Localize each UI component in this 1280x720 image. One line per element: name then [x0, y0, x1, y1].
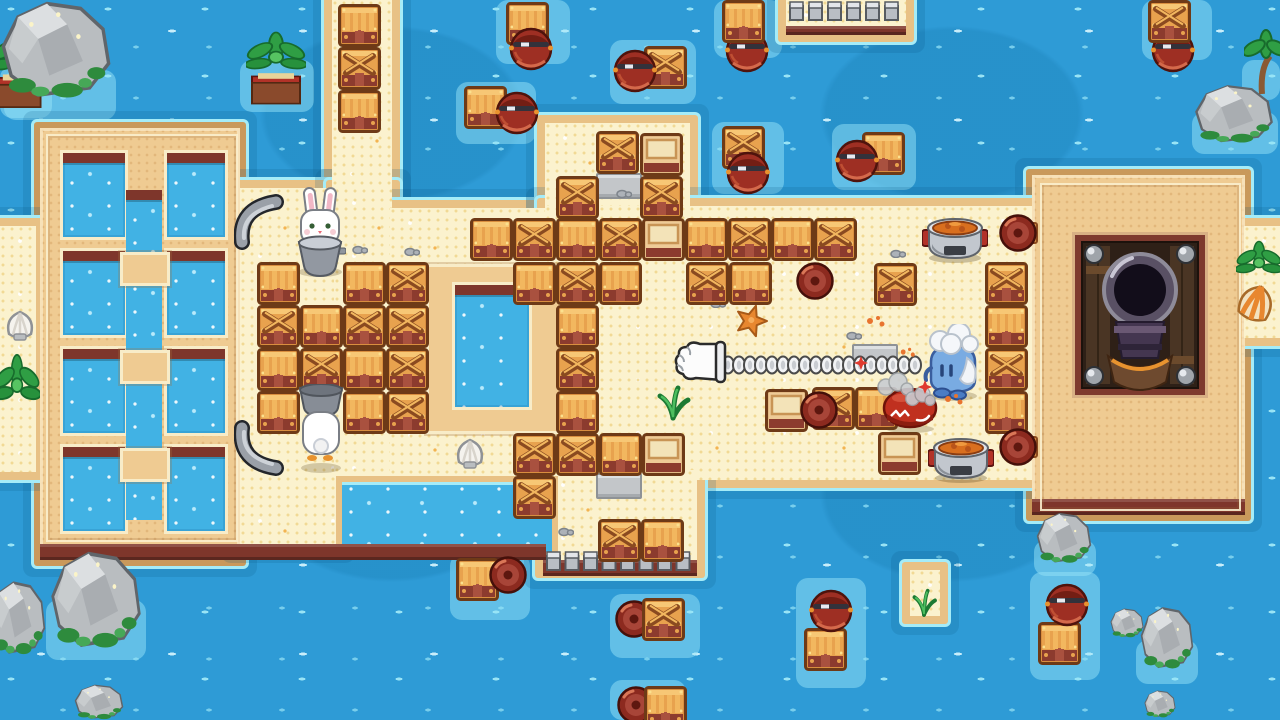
rock [50, 550, 142, 650]
red-barrel [808, 586, 854, 634]
wooden-crate [257, 305, 300, 348]
palm-bush [1236, 238, 1280, 300]
metal-hook [234, 192, 288, 250]
orange-splat [866, 314, 886, 328]
cooking-pot [928, 430, 994, 484]
dock-posts [789, 0, 903, 22]
wooden-crate [874, 263, 917, 306]
red-barrel-side [488, 554, 528, 596]
wooden-crate [641, 519, 684, 562]
red-barrel [834, 136, 880, 184]
starfish [734, 304, 768, 338]
rock [1110, 608, 1144, 638]
wooden-crate [771, 218, 814, 261]
wooden-crate [556, 433, 599, 476]
wooden-crate [728, 218, 771, 261]
stone-tile [596, 473, 642, 499]
wooden-crate [343, 391, 386, 434]
wooden-crate [985, 305, 1028, 348]
cannon [1072, 232, 1208, 398]
wooden-crate [556, 218, 599, 261]
red-barrel [508, 24, 554, 72]
wooden-crate [1148, 0, 1191, 43]
wooden-crate [338, 90, 381, 133]
wooden-crate [729, 262, 772, 305]
pebbles [558, 526, 574, 536]
wooden-crate [685, 218, 728, 261]
red-barrel [494, 88, 540, 136]
game-viewport[interactable] [0, 0, 1280, 720]
rabbit-character-back[interactable] [296, 384, 346, 474]
wooden-crate [985, 348, 1028, 391]
orange-splat [900, 346, 916, 358]
cooking-pot [922, 210, 988, 264]
rabbit-character[interactable] [294, 186, 346, 278]
wooden-crate [642, 218, 685, 261]
hit-sparkle [918, 380, 932, 394]
rock [0, 0, 112, 100]
wooden-crate [640, 133, 683, 176]
wooden-crate [642, 598, 685, 641]
rock [0, 580, 46, 656]
wooden-crate [300, 305, 343, 348]
white-shell [2, 308, 38, 342]
wooden-crate [642, 433, 685, 476]
pebbles [846, 330, 862, 340]
red-barrel-side [799, 389, 839, 431]
wooden-crate [386, 262, 429, 305]
pebbles [616, 188, 632, 198]
rock [1140, 606, 1194, 670]
rock [1194, 84, 1274, 144]
platform-rim [46, 134, 238, 542]
wooden-crate [599, 218, 642, 261]
rock [1144, 690, 1176, 718]
retaining-wall [786, 26, 906, 35]
wooden-crate [513, 218, 556, 261]
wooden-crate [599, 262, 642, 305]
wooden-crate [338, 4, 381, 47]
red-barrel [1044, 580, 1090, 628]
pebbles [352, 244, 368, 254]
red-barrel-side [998, 212, 1038, 254]
wooden-crate [556, 262, 599, 305]
wooden-crate [257, 348, 300, 391]
wooden-crate [985, 262, 1028, 305]
rock [74, 684, 124, 720]
red-barrel-side [795, 260, 835, 302]
pebbles [404, 246, 420, 256]
boxing-glove [674, 336, 728, 392]
wooden-crate [640, 176, 683, 219]
wooden-crate [513, 433, 556, 476]
palm-planter [246, 30, 306, 110]
game-screen [0, 0, 1280, 720]
wooden-crate [386, 391, 429, 434]
wooden-crate [596, 131, 639, 174]
rock [1036, 512, 1092, 564]
hit-sparkle [854, 356, 868, 370]
metal-hook [234, 420, 288, 478]
wooden-crate [814, 218, 857, 261]
red-barrel [725, 148, 771, 196]
palm-bush [0, 350, 40, 438]
seedling [910, 578, 938, 618]
wooden-crate [598, 519, 641, 562]
wooden-crate [513, 262, 556, 305]
wooden-crate [386, 348, 429, 391]
red-barrel [612, 46, 658, 94]
pebbles [890, 248, 906, 258]
wooden-crate [343, 348, 386, 391]
wooden-crate [556, 391, 599, 434]
wooden-crate [470, 218, 513, 261]
wooden-crate [386, 305, 429, 348]
wooden-crate [804, 628, 847, 671]
white-shell [452, 436, 488, 470]
wooden-crate [556, 348, 599, 391]
red-barrel-side [998, 426, 1038, 468]
wooden-crate [644, 686, 687, 720]
wooden-crate [722, 0, 765, 43]
wooden-crate [878, 432, 921, 475]
wooden-crate [343, 262, 386, 305]
wooden-crate [686, 262, 729, 305]
wooden-crate [1038, 622, 1081, 665]
wooden-crate [343, 305, 386, 348]
orange-splat [944, 392, 964, 406]
wooden-crate [513, 476, 556, 519]
wooden-crate [556, 305, 599, 348]
wooden-crate [599, 433, 642, 476]
wooden-crate [338, 47, 381, 90]
wooden-crate [556, 176, 599, 219]
